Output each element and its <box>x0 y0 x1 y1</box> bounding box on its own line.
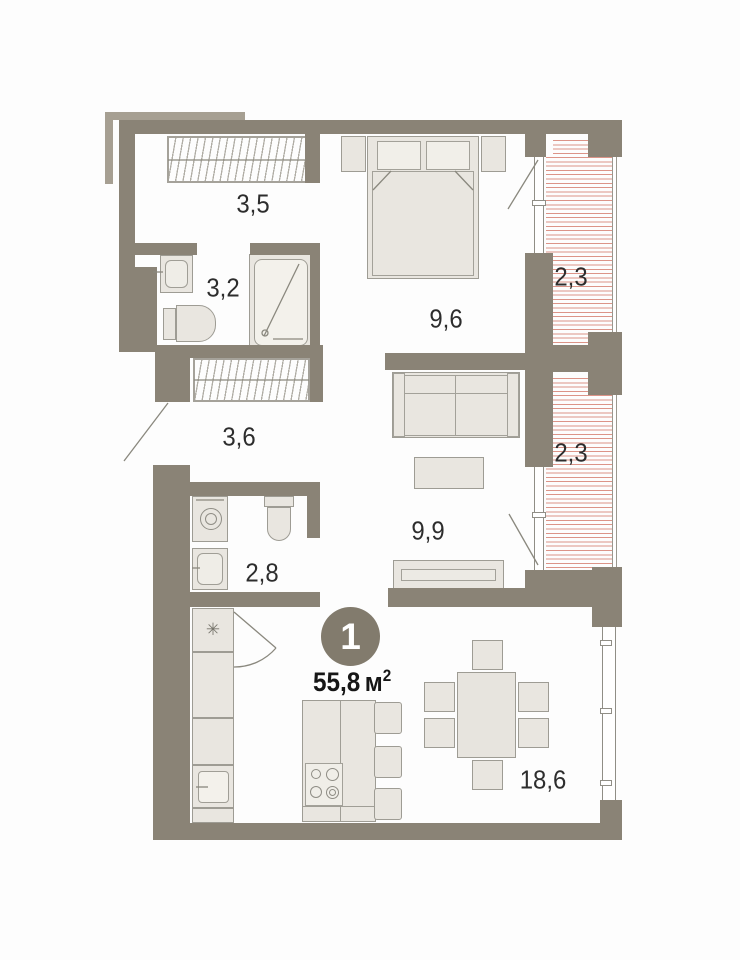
wall <box>190 482 320 496</box>
wall <box>592 567 622 627</box>
room-label-dressing: 3,5 <box>236 189 269 220</box>
room-label-living: 9,9 <box>411 516 444 547</box>
toilet-tank <box>163 308 176 340</box>
room-label-kitchen: 18,6 <box>520 765 567 796</box>
dining-table <box>457 672 516 758</box>
window-mullion <box>600 640 612 646</box>
sink <box>160 255 193 293</box>
wall <box>588 134 622 157</box>
sofa-back-cushion <box>404 375 456 394</box>
room-label-balcony-lower: 2,3 <box>554 438 587 469</box>
room-label-bedroom: 9,6 <box>429 304 462 335</box>
entrance-door-swing <box>124 403 168 461</box>
kitchen-sink-basin <box>198 771 229 803</box>
dining-chair <box>518 682 549 712</box>
toilet-tank <box>264 496 294 507</box>
toilet-bowl <box>267 507 291 541</box>
sink <box>192 548 228 590</box>
burner <box>326 768 339 781</box>
pillow <box>426 141 470 170</box>
wall <box>307 496 320 538</box>
wall-light <box>105 112 245 120</box>
window-mullion <box>600 780 612 786</box>
dining-chair <box>424 718 455 748</box>
dining-chair <box>472 640 503 670</box>
dining-chair <box>472 760 503 790</box>
sofa-seat-cushion <box>404 393 456 436</box>
room-label-hallway: 3,6 <box>222 422 255 453</box>
wall <box>525 134 546 157</box>
nightstand <box>341 136 366 172</box>
bar-stool <box>374 788 402 820</box>
kitchen-island <box>302 700 376 822</box>
wall <box>190 592 318 607</box>
kitchen-sink-cabinet <box>192 765 234 808</box>
unit-number: 1 <box>340 616 361 658</box>
sofa-seat-cushion <box>455 393 508 436</box>
washing-machine <box>192 496 228 542</box>
area-value: 55,8 <box>313 667 360 697</box>
sink-basin <box>165 260 188 288</box>
toilet-bowl <box>176 305 216 342</box>
kitchen-counter <box>192 652 234 718</box>
wall <box>305 134 320 183</box>
wall <box>525 345 590 372</box>
window-mullion <box>532 200 546 206</box>
wall <box>153 823 622 840</box>
wardrobe <box>193 358 310 402</box>
pillow <box>377 141 421 170</box>
burner <box>329 789 336 796</box>
wall <box>119 120 622 134</box>
balcony-glazing <box>612 140 617 332</box>
balcony-lower-hatch <box>546 378 613 582</box>
balcony-upper-hatch <box>546 157 613 345</box>
window-mullion <box>600 708 612 714</box>
wall <box>135 243 197 255</box>
wall <box>119 267 157 352</box>
washer-drum-inner <box>205 513 217 525</box>
wall <box>525 570 592 588</box>
fridge-door-swing <box>234 648 276 667</box>
total-area-label: 55,8м2 <box>313 667 391 698</box>
nightstand <box>481 136 506 172</box>
wardrobe <box>167 136 307 183</box>
sofa <box>392 372 520 438</box>
wall <box>525 370 553 467</box>
wall <box>310 253 320 352</box>
room-label-laundry: 2,8 <box>245 558 278 589</box>
wall <box>388 588 592 607</box>
wall-light <box>105 112 113 184</box>
window-living-balcony <box>534 467 544 570</box>
sink-basin <box>197 553 223 585</box>
stove <box>305 763 343 806</box>
wall <box>153 465 190 840</box>
balcony-glazing <box>612 395 617 583</box>
window-mullion <box>532 512 546 518</box>
island-divider <box>303 806 375 807</box>
fridge-door-leaf <box>234 612 276 648</box>
balcony-upper-hatch-notch <box>553 140 590 157</box>
area-superscript: 2 <box>383 666 392 685</box>
kitchen-counter <box>192 808 234 823</box>
bed <box>367 136 479 279</box>
tv <box>401 569 496 581</box>
fridge: ✳ <box>192 608 234 652</box>
unit-number-badge: 1 <box>321 607 380 666</box>
burner <box>311 769 321 779</box>
shower-tray <box>254 259 308 346</box>
area-unit: м <box>365 667 383 697</box>
bar-stool <box>374 702 402 734</box>
bar-stool <box>374 746 402 778</box>
wall <box>525 253 553 348</box>
shower <box>249 254 313 351</box>
wall <box>600 800 622 827</box>
blanket <box>372 171 474 276</box>
coffee-table <box>414 457 484 489</box>
room-label-bathroom: 3,2 <box>206 273 239 304</box>
dining-chair <box>518 718 549 748</box>
wall <box>588 332 622 395</box>
sofa-armrest <box>507 373 519 437</box>
dining-chair <box>424 682 455 712</box>
kitchen-counter <box>192 718 234 765</box>
tv-console <box>393 560 504 589</box>
fridge-icon: ✳ <box>193 609 233 651</box>
floor-plan: ✳ <box>0 0 740 960</box>
room-label-balcony-upper: 2,3 <box>554 262 587 293</box>
wall <box>310 345 323 402</box>
sofa-back-cushion <box>455 375 508 394</box>
wall <box>155 348 190 402</box>
burner <box>310 786 322 798</box>
